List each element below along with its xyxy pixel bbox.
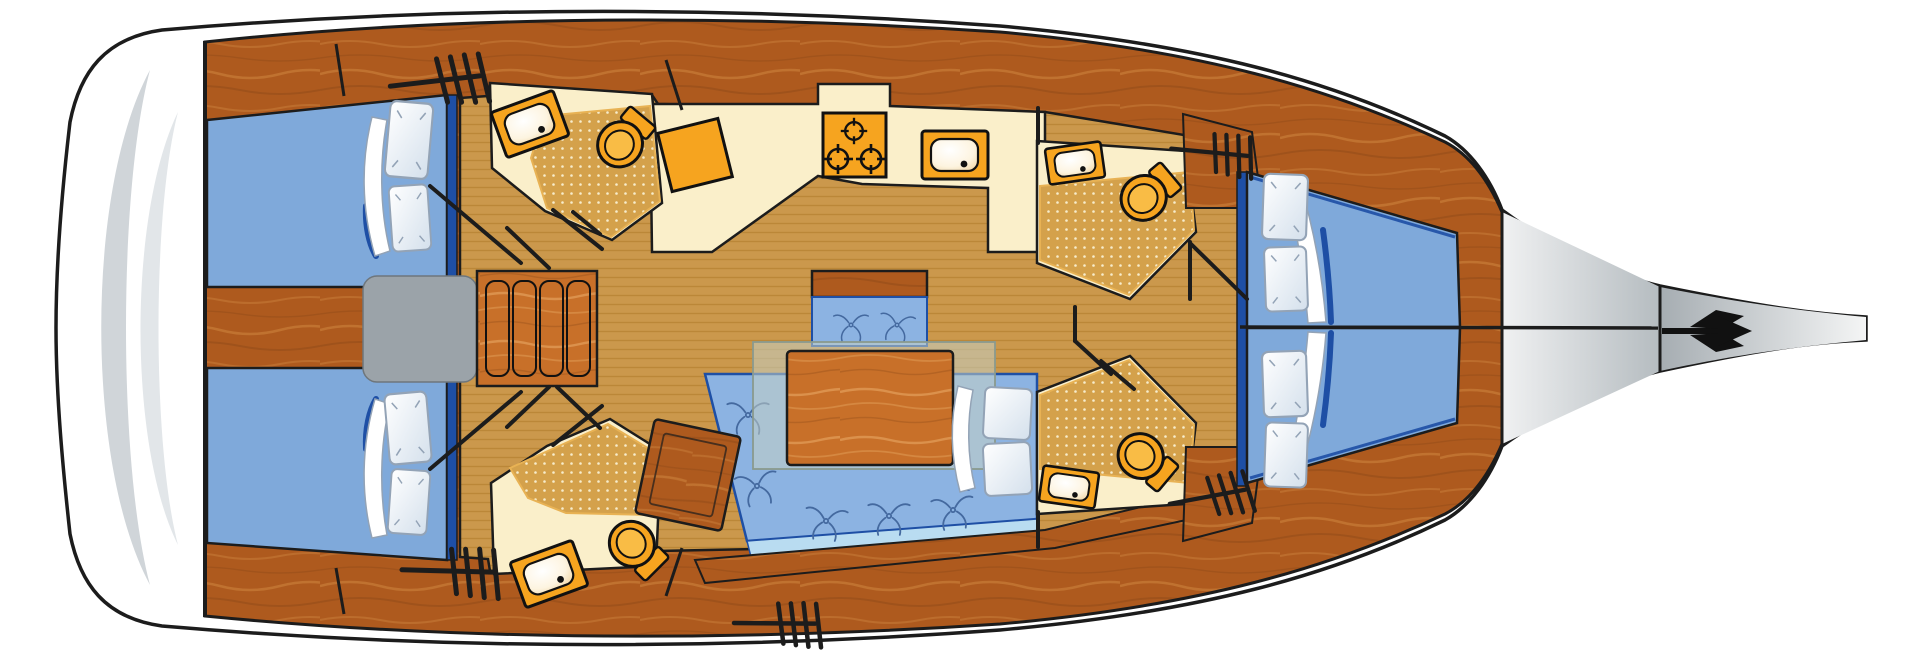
settee-forward-cushion [812, 297, 927, 346]
pillow [1262, 351, 1308, 418]
sink-icon [1039, 465, 1099, 508]
floorplan-canvas [0, 0, 1920, 655]
aft-cabin-starboard [207, 368, 457, 560]
pillow [387, 469, 430, 536]
pillow [1264, 246, 1308, 311]
pillow [384, 101, 433, 180]
ladder-step [486, 281, 509, 376]
sink-icon [1045, 141, 1105, 184]
pillow [1262, 174, 1308, 241]
floorplan-page [0, 0, 1920, 655]
settee-backrest [812, 271, 927, 297]
pillow [983, 387, 1033, 440]
stove [823, 113, 886, 177]
salon-side-panel [635, 419, 741, 531]
pillow [1264, 422, 1308, 487]
ladder-step [540, 281, 563, 376]
engine-box [363, 276, 477, 382]
ladder-step [513, 281, 536, 376]
aft-cabin-port [207, 95, 457, 287]
companionway [363, 271, 597, 386]
chart-table [658, 118, 733, 191]
pillow [388, 184, 431, 252]
salon-table [787, 351, 953, 465]
pillow [983, 442, 1033, 496]
aft-starboard-berth-headboard [447, 368, 457, 560]
aft-port-berth-headboard [447, 95, 457, 287]
forward-centerline [1240, 327, 1658, 328]
pillow [384, 391, 432, 465]
ladder-step [567, 281, 590, 376]
v-berth-edge-strip [1237, 172, 1247, 486]
galley-sink [922, 131, 988, 179]
